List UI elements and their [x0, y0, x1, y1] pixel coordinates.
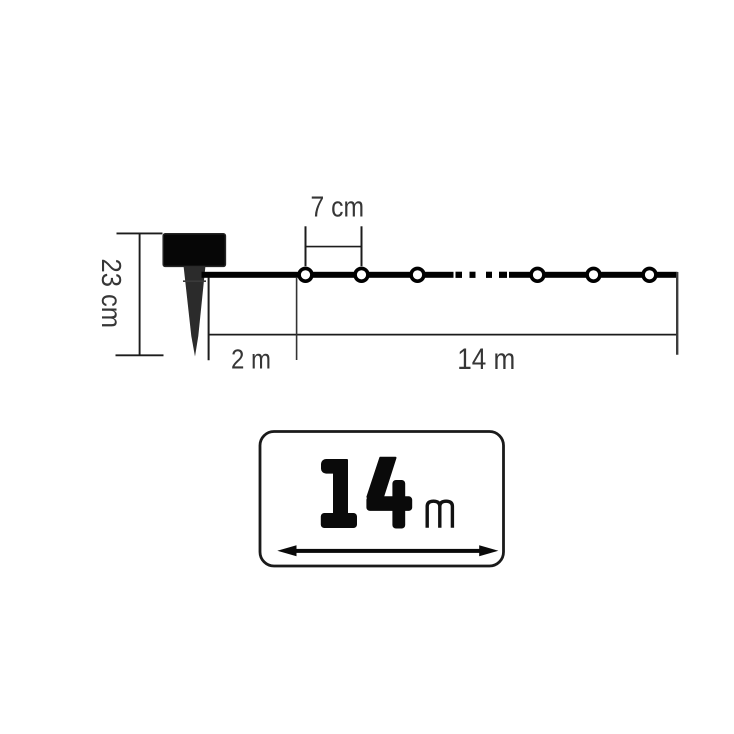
svg-text:7 cm: 7 cm: [311, 192, 365, 224]
svg-text:14 m: 14 m: [457, 343, 515, 376]
svg-text:2 m: 2 m: [231, 343, 271, 374]
svg-text:23 cm: 23 cm: [96, 259, 127, 329]
